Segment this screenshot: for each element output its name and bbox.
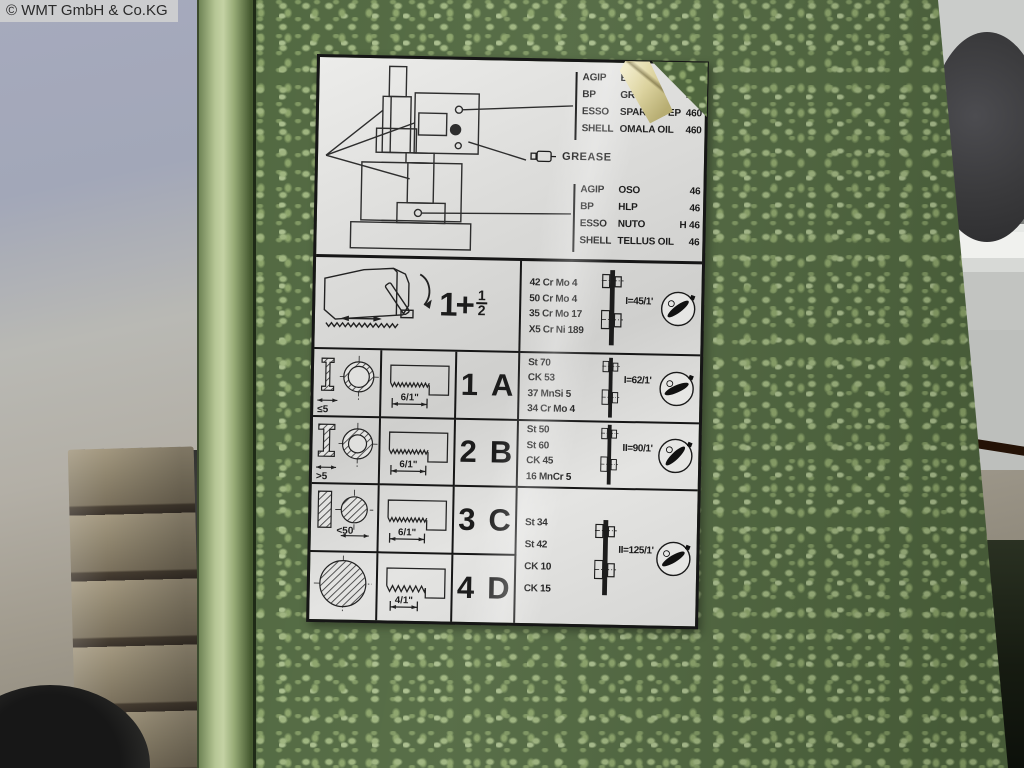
blade-pitch-cell-1: 6/1" — [381, 350, 457, 419]
blade-pitch-cell-2: 6/1" — [380, 418, 456, 487]
speed-dial-icon — [658, 289, 699, 330]
grease-label: GREASE — [562, 151, 612, 164]
blade-code-cell-3: 3 C — [453, 487, 517, 556]
oil-row: SHELL TELLUS OIL 46 — [579, 235, 699, 254]
speed-cell-1: 42 Cr Mo 4 50 Cr Mo 4 35 Cr Mo 17 X5 Cr … — [520, 261, 702, 356]
grease-nipple-icon — [530, 149, 556, 163]
speed-dial-icon — [653, 538, 694, 579]
hydraulic-oil-list: AGIP OSO 46 BP HLP 46 ESSO NUTO H 46 SHE… — [572, 184, 700, 254]
speed-label: II=90/1' — [622, 443, 652, 455]
blade-guide-icon — [598, 424, 621, 486]
materials-list: St 50 St 60 CK 45 16 MnCr 5 — [518, 422, 599, 486]
blade-code-cell-1: 1 A — [456, 352, 520, 421]
machine-photo: AGIP BLASIA BP GR 460 ESSO SPARTAN EP 46… — [0, 0, 1024, 768]
saw-bow-cell: 1+ 1 2 — [314, 257, 522, 353]
blade-guide-icon — [599, 356, 622, 418]
cross-section-cell-4 — [309, 551, 378, 620]
materials-list: 42 Cr Mo 4 50 Cr Mo 4 35 Cr Mo 17 X5 Cr … — [521, 275, 602, 339]
svg-text:4/1": 4/1" — [394, 595, 412, 606]
blade-code-cell-4: 4 D — [452, 554, 516, 623]
lubrication-section: AGIP BLASIA BP GR 460 ESSO SPARTAN EP 46… — [316, 57, 706, 264]
profile-solid-icon: <50 — [311, 485, 378, 550]
blade-guide-icon — [600, 269, 623, 347]
profile-thick-icon: >5 — [312, 417, 379, 482]
lubrication-data-plate: AGIP BLASIA BP GR 460 ESSO SPARTAN EP 46… — [306, 54, 709, 629]
blade-pitch-cell-4: 4/1" — [377, 553, 453, 622]
saw-bow-icon — [314, 259, 438, 347]
speed-dial-icon — [656, 368, 697, 409]
cross-section-cell-1: ≤5 — [313, 349, 382, 418]
cross-section-cell-2: >5 — [312, 416, 381, 485]
cross-section-cell-3: <50 — [310, 484, 379, 553]
svg-text:≤5: ≤5 — [317, 404, 329, 415]
speed-cell-4: St 34 St 42 CK 10 CK 15 — [515, 488, 698, 626]
blade-guide-icon — [593, 502, 617, 612]
grease-point: GREASE — [530, 149, 612, 165]
profile-thin-icon: ≤5 — [313, 350, 380, 415]
materials-list: St 34 St 42 CK 10 CK 15 — [516, 511, 595, 600]
svg-text:6/1": 6/1" — [399, 459, 417, 470]
speed-label: I=45/1' — [625, 295, 653, 307]
ratio-fraction: 1 2 — [476, 289, 488, 317]
blade-pitch-icon: 6/1" — [382, 353, 455, 414]
svg-text:<50: <50 — [336, 525, 354, 536]
watermark: © WMT GmbH & Co.KG — [0, 0, 178, 22]
blade-pitch-cell-3: 6/1" — [378, 485, 454, 554]
svg-text:6/1": 6/1" — [398, 527, 416, 538]
profile-round-large-icon — [309, 553, 376, 618]
panel-edge — [197, 0, 256, 768]
svg-text:6/1": 6/1" — [400, 392, 418, 403]
materials-list: St 70 CK 53 37 MnSi 5 34 Cr Mo 4 — [519, 355, 600, 419]
blade-pitch-icon: 6/1" — [379, 488, 452, 549]
transmission-ratio: 1+ 1 2 — [439, 285, 488, 324]
speed-cell-2: St 70 CK 53 37 MnSi 5 34 Cr Mo 4 — [519, 353, 700, 424]
speed-label: I=62/1' — [624, 375, 652, 387]
blade-selection-chart: 1+ 1 2 42 Cr Mo 4 50 Cr Mo 4 35 Cr Mo 17… — [309, 257, 702, 626]
speed-label: II=125/1' — [618, 545, 653, 557]
blade-pitch-icon: 4/1" — [378, 557, 451, 618]
svg-text:>5: >5 — [316, 471, 328, 482]
speed-dial-icon — [655, 436, 696, 477]
blade-code-cell-2: 2 B — [455, 419, 519, 488]
oil-row: SHELL OMALA OIL 460 — [581, 123, 701, 142]
blade-pitch-icon: 6/1" — [380, 421, 453, 482]
speed-cell-3: St 50 St 60 CK 45 16 MnCr 5 — [518, 420, 699, 491]
